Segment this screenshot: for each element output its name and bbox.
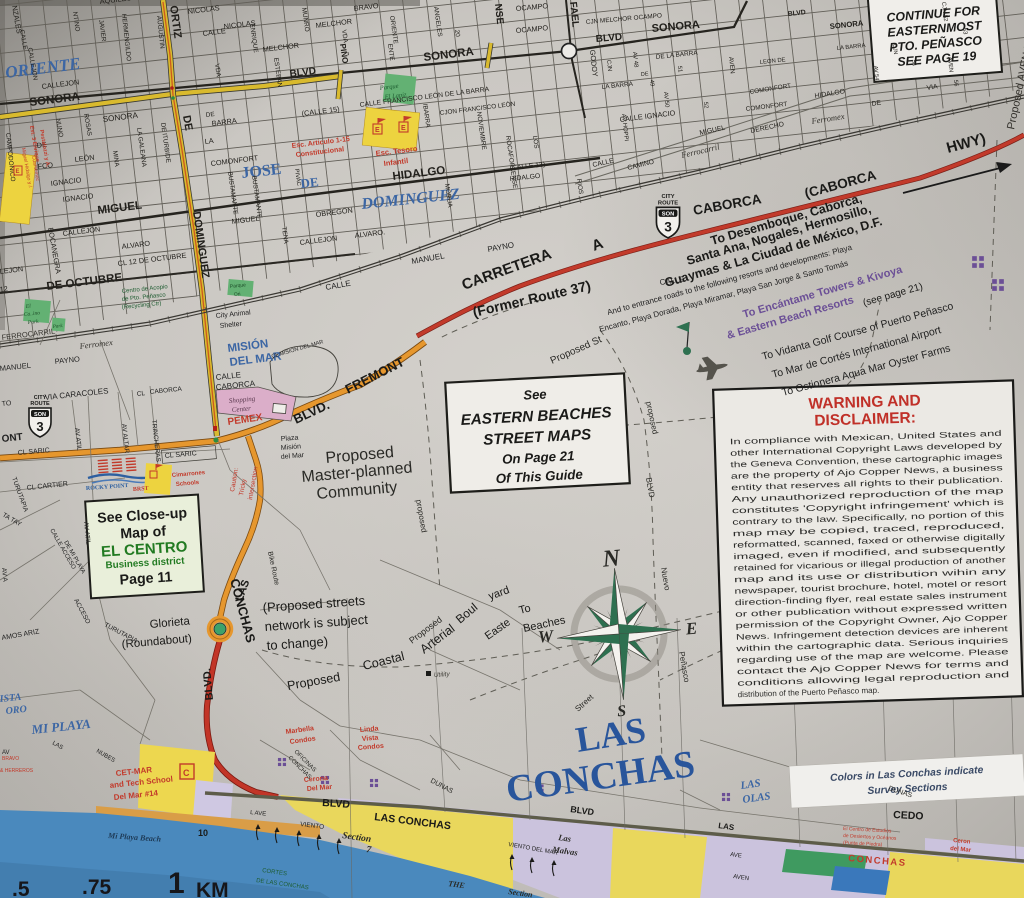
svg-text:51: 51 bbox=[676, 66, 683, 73]
svg-text:3: 3 bbox=[36, 419, 43, 434]
svg-text:12: 12 bbox=[0, 284, 8, 294]
svg-text:1: 1 bbox=[168, 867, 185, 898]
svg-text:DE: DE bbox=[300, 174, 320, 191]
svg-text:CJN: CJN bbox=[605, 60, 612, 72]
svg-text:El: El bbox=[25, 303, 32, 310]
svg-text:CEDO: CEDO bbox=[893, 809, 924, 823]
svg-text:LA: LA bbox=[204, 136, 214, 146]
svg-text:KM: KM bbox=[196, 879, 229, 898]
svg-text:49: 49 bbox=[648, 80, 655, 87]
svg-text:10: 10 bbox=[198, 828, 208, 838]
svg-text:SON: SON bbox=[662, 212, 675, 218]
svg-text:SON: SON bbox=[34, 412, 46, 418]
svg-text:Page 11: Page 11 bbox=[119, 569, 173, 588]
svg-text:3: 3 bbox=[664, 220, 672, 235]
svg-text:DISCLAIMER:: DISCLAIMER: bbox=[814, 409, 916, 429]
svg-text:BRAVO: BRAVO bbox=[2, 756, 19, 762]
svg-text:TO: TO bbox=[1, 400, 12, 408]
svg-text:& HERREROS: & HERREROS bbox=[0, 768, 34, 774]
svg-text:Ori: Ori bbox=[234, 291, 241, 298]
svg-text:E: E bbox=[401, 125, 406, 132]
svg-text:ONT: ONT bbox=[1, 432, 23, 445]
svg-text:Utility: Utility bbox=[434, 671, 451, 679]
svg-text:20: 20 bbox=[453, 29, 461, 37]
svg-text:E: E bbox=[16, 169, 20, 175]
svg-text:ORO: ORO bbox=[5, 704, 27, 717]
svg-text:ROUTE: ROUTE bbox=[658, 200, 678, 206]
svg-text:C: C bbox=[183, 768, 190, 778]
svg-text:.5: .5 bbox=[12, 878, 30, 898]
svg-text:ROUTE: ROUTE bbox=[30, 401, 50, 407]
svg-text:BLVD: BLVD bbox=[322, 797, 351, 811]
svg-text:Vista: Vista bbox=[362, 735, 379, 743]
svg-text:CL: CL bbox=[136, 390, 145, 398]
svg-text:CITY: CITY bbox=[661, 194, 674, 200]
svg-text:E: E bbox=[375, 127, 380, 134]
svg-text:DE: DE bbox=[641, 71, 650, 78]
svg-text:Las: Las bbox=[557, 832, 573, 844]
svg-text:52: 52 bbox=[702, 102, 709, 109]
svg-text:CJN: CJN bbox=[891, 44, 898, 55]
svg-text:NSE: NSE bbox=[492, 3, 505, 25]
svg-text:Center: Center bbox=[231, 404, 251, 414]
svg-text:BRST: BRST bbox=[133, 486, 149, 493]
svg-text:BLVD: BLVD bbox=[595, 32, 622, 45]
svg-text:.75: .75 bbox=[82, 876, 112, 898]
svg-text:54: 54 bbox=[910, 60, 917, 67]
svg-text:See: See bbox=[523, 386, 547, 402]
svg-text:Park: Park bbox=[27, 319, 40, 326]
svg-text:E: E bbox=[684, 619, 698, 639]
